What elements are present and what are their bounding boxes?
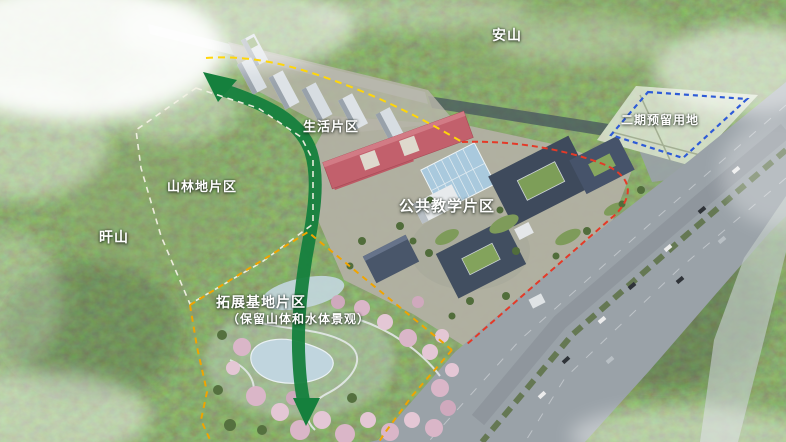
campus-masterplan-aerial-map: 安山 生活片区 山林地片区 旰山 公共教学片区 二期预留用地 拓展基地片区 （保… [0, 0, 786, 442]
label-anshan-mountain: 安山 [492, 29, 522, 43]
label-phase2-reserved: 二期预留用地 [621, 114, 699, 126]
label-teaching-area: 公共教学片区 [399, 199, 495, 214]
label-expansion-area: 拓展基地片区 [216, 296, 306, 310]
label-ganshan-mountain: 旰山 [99, 231, 129, 245]
label-expansion-area-note: （保留山体和水体景观） [227, 313, 370, 325]
label-forest-area: 山林地片区 [167, 181, 237, 194]
label-living-area: 生活片区 [303, 121, 359, 134]
masterplan-rendering [0, 0, 786, 442]
